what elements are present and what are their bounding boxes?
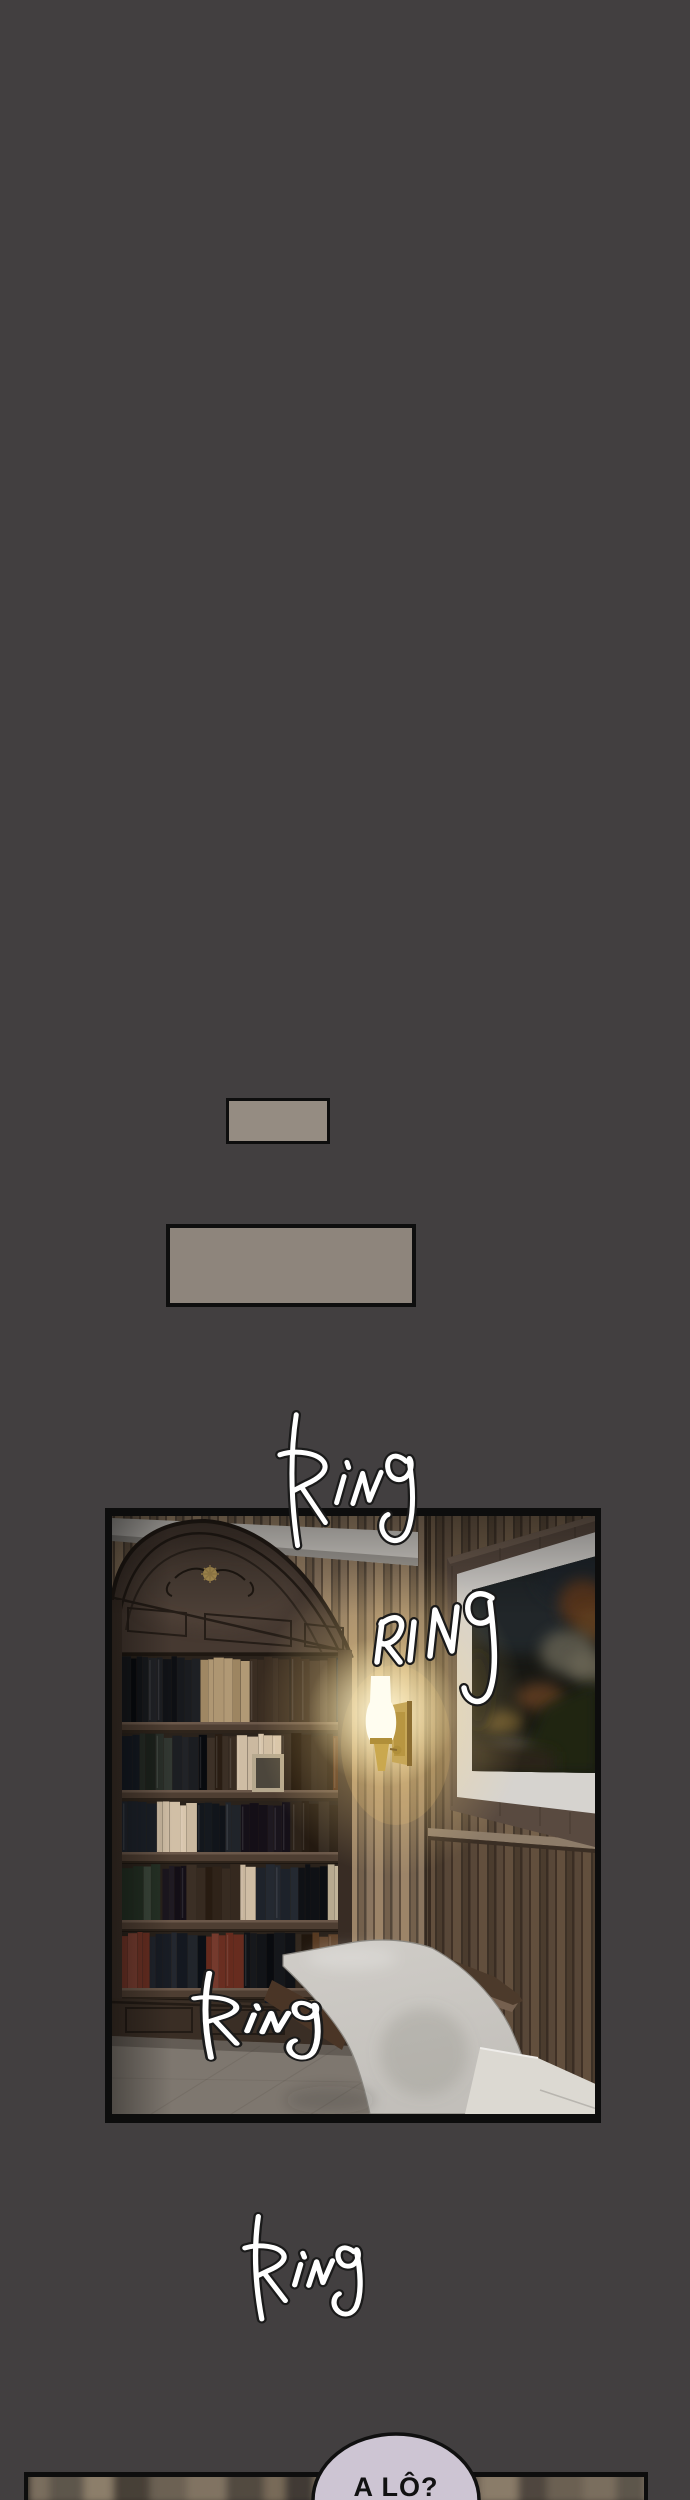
- svg-text:A LÔ?: A LÔ?: [354, 2471, 439, 2500]
